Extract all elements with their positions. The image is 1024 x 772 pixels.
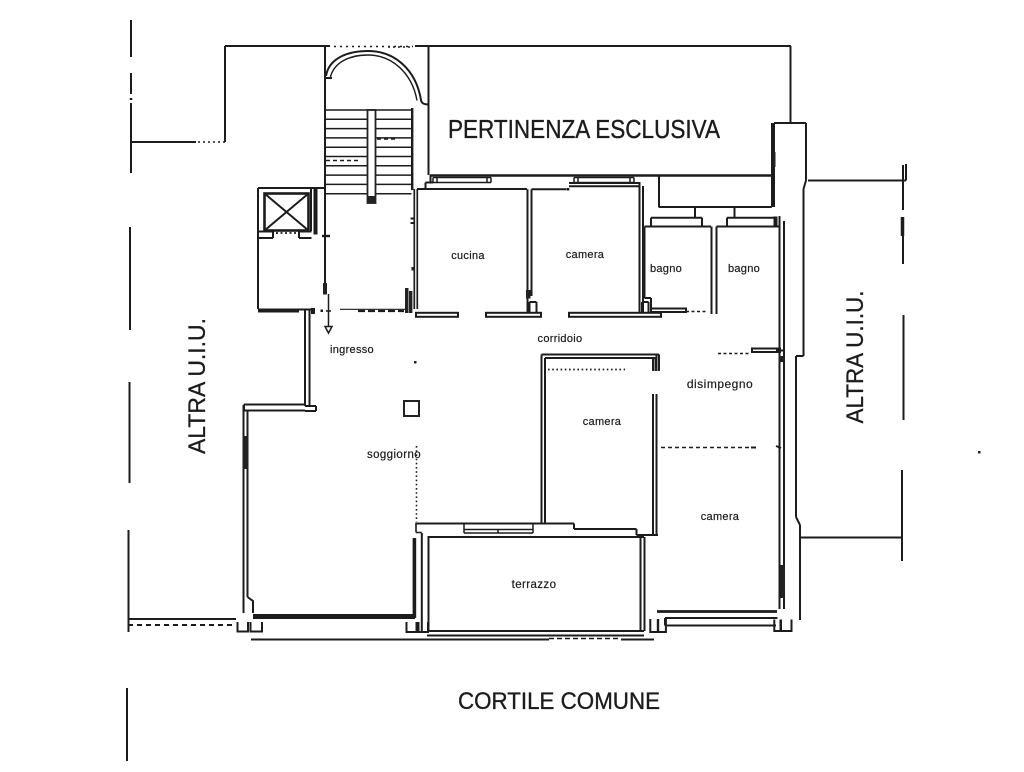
svg-text:CORTILE COMUNE: CORTILE COMUNE xyxy=(458,688,660,715)
svg-text:camera: camera xyxy=(701,511,740,523)
svg-text:cucina: cucina xyxy=(451,250,485,262)
svg-text:PERTINENZA ESCLUSIVA: PERTINENZA ESCLUSIVA xyxy=(448,114,721,144)
svg-text:ingresso: ingresso xyxy=(330,344,374,356)
svg-text:disimpegno: disimpegno xyxy=(687,377,753,391)
svg-text:terrazzo: terrazzo xyxy=(512,579,557,591)
svg-text:ALTRA U.I.U.: ALTRA U.I.U. xyxy=(842,291,869,424)
svg-text:bagno: bagno xyxy=(728,263,760,275)
svg-text:corridoio: corridoio xyxy=(538,333,583,345)
svg-text:ALTRA U.I.U.: ALTRA U.I.U. xyxy=(184,318,211,454)
svg-text:soggiorno: soggiorno xyxy=(367,449,421,461)
svg-text:bagno: bagno xyxy=(650,263,682,275)
svg-text:camera: camera xyxy=(566,249,605,261)
svg-text:camera: camera xyxy=(583,416,622,428)
